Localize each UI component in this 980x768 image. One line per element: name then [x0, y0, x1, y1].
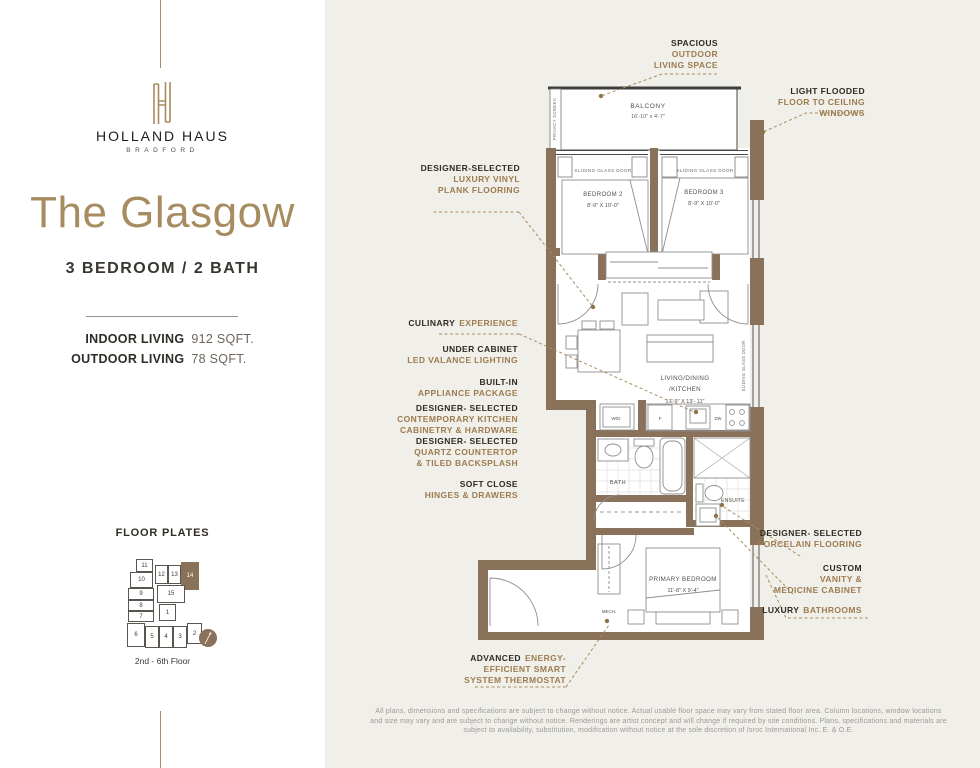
sliding-glass-door-label-vertical: SLIDING GLASS DOOR	[741, 340, 746, 391]
bedroom3-label: BEDROOM 3	[684, 190, 724, 196]
floor-plate-unit: 13	[168, 565, 181, 584]
floor-plate-unit: 12	[155, 565, 168, 584]
brand-location: BRADFORD	[0, 147, 325, 154]
outdoor-living-value: 78 SQFT.	[191, 352, 253, 366]
callout-line: QUARTZ COUNTERTOP	[414, 447, 518, 457]
callout-under-cabinet: UNDER CABINET LED VALANCE LIGHTING	[407, 344, 518, 366]
callout-line: WINDOWS	[819, 108, 865, 118]
callout-line: EFFICIENT SMART	[484, 664, 567, 674]
balcony-label: BALCONY	[630, 103, 665, 110]
callout-line: SPACIOUS	[671, 38, 718, 48]
callout-line: DESIGNER- SELECTED	[760, 528, 862, 538]
bedroom2-dims: 8'-9" X 10'-0"	[587, 203, 619, 209]
callout-line: HINGES & DRAWERS	[425, 490, 518, 500]
callout-light-flooded: LIGHT FLOODED FLOOR TO CEILING WINDOWS	[778, 86, 865, 119]
callout-line: SYSTEM THERMOSTAT	[464, 675, 566, 685]
callout-line: BUILT-IN	[480, 377, 518, 387]
floor-plate-unit: 8	[128, 600, 154, 611]
callout-line: DESIGNER- SELECTED	[416, 436, 518, 446]
page-title: The Glasgow	[0, 188, 325, 238]
balcony: PRIVACY SCREEN BALCONY 16'-10" x 4'-7"	[548, 88, 741, 150]
callout-line: APPLIANCE PACKAGE	[418, 388, 518, 398]
callout-spacious-outdoor: SPACIOUS OUTDOOR LIVING SPACE	[654, 38, 718, 71]
callout-line: SOFT CLOSE	[460, 479, 518, 489]
living-label-2: /KITCHEN	[669, 386, 701, 393]
callout-line: PLANK FLOORING	[438, 185, 520, 195]
living-label-1: LIVING/DINING	[661, 375, 710, 382]
callout-line: VANITY &	[820, 574, 862, 584]
callout-vinyl-flooring: DESIGNER-SELECTED LUXURY VINYL PLANK FLO…	[421, 163, 520, 196]
callout-line: EXPERIENCE	[459, 318, 518, 328]
decor-line-bottom	[160, 711, 161, 768]
callout-line: LIGHT FLOODED	[790, 86, 865, 96]
plan-panel: PRIVACY SCREEN BALCONY 16'-10" x 4'-7"	[325, 0, 980, 768]
callout-line: LED VALANCE LIGHTING	[407, 355, 518, 365]
callout-line: OUTDOOR	[672, 49, 718, 59]
decor-line-top	[160, 0, 161, 68]
bedroom3-dims: 8'-9" X 10'-0"	[688, 201, 720, 207]
callout-soft-close: SOFT CLOSE HINGES & DRAWERS	[425, 479, 518, 501]
callout-line: BATHROOMS	[803, 605, 862, 615]
callout-culinary: CULINARYEXPERIENCE	[408, 318, 518, 329]
sliding-glass-door-label: SLIDING GLASS DOOR	[574, 168, 632, 173]
floor-plate-unit: 7	[128, 611, 154, 622]
indoor-living-value: 912 SQFT.	[191, 332, 253, 346]
disclaimer: All plans, dimensions and specifications…	[355, 707, 962, 736]
callout-line: DESIGNER-SELECTED	[421, 163, 520, 173]
dw-label: DW	[715, 416, 722, 421]
callout-line: CULINARY	[408, 318, 455, 328]
disclaimer-line: and size may vary and are subject to cha…	[355, 717, 962, 727]
unit-type: 3 BEDROOM / 2 BATH	[0, 260, 325, 278]
callout-thermostat: ADVANCEDENERGY- EFFICIENT SMART SYSTEM T…	[464, 653, 566, 686]
callout-line: ENERGY-	[525, 653, 566, 663]
floor-plate-unit: 15	[157, 585, 185, 603]
floor-plate-unit: 1	[159, 604, 176, 621]
page: { "colors": { "accent_gold": "#a78c60", …	[0, 0, 980, 768]
callout-line: LUXURY	[762, 605, 799, 615]
outdoor-living-label: OUTDOOR LIVING	[71, 352, 184, 366]
disclaimer-line: subject to availability, substitution, m…	[355, 726, 962, 736]
primary-label: PRIMARY BEDROOM	[649, 576, 717, 583]
callout-line: UNDER CABINET	[442, 344, 518, 354]
callout-line: LUXURY VINYL	[453, 174, 520, 184]
callout-line: LIVING SPACE	[654, 60, 718, 70]
north-arrow-icon	[198, 628, 218, 648]
callout-line: CUSTOM	[823, 563, 862, 573]
brand-name: HOLLAND HAUS	[0, 128, 325, 144]
callout-line: ADVANCED	[470, 653, 521, 663]
ensuite-label: ENSUITE	[721, 498, 745, 504]
floor-plate-unit: 5	[145, 626, 159, 648]
floor-plates-caption: 2nd - 6th Floor	[0, 656, 325, 666]
callout-line: CABINETRY & HARDWARE	[400, 425, 518, 435]
callout-line: CONTEMPORARY KITCHEN	[397, 414, 518, 424]
floor-plate-unit: 10	[130, 572, 153, 588]
floor-plate-unit: 6	[127, 623, 145, 647]
holland-haus-monogram-icon	[142, 80, 182, 126]
callout-custom-vanity: CUSTOM VANITY & MEDICINE CABINET	[774, 563, 862, 596]
privacy-screen-label: PRIVACY SCREEN	[552, 98, 557, 140]
primary-dims: 11'-8" X 9'-4"	[667, 588, 698, 594]
callout-line: DESIGNER- SELECTED	[416, 403, 518, 413]
floor-plate-unit: 11	[136, 559, 153, 572]
divider	[86, 316, 238, 317]
callout-line: FLOOR TO CEILING	[778, 97, 865, 107]
callout-line: MEDICINE CABINET	[774, 585, 862, 595]
area-stats: INDOOR LIVING 912 SQFT. OUTDOOR LIVING 7…	[0, 332, 325, 366]
floor-plate-unit: 9	[128, 588, 154, 600]
callout-line: & TILED BACKSPLASH	[416, 458, 518, 468]
floor-plates-title: FLOOR PLATES	[0, 527, 325, 539]
callout-luxury-bathrooms: LUXURYBATHROOMS	[762, 605, 862, 616]
floor-plate-unit: 3	[173, 626, 187, 648]
callout-line: PORCELAIN FLOORING	[758, 539, 862, 549]
indoor-living-label: INDOOR LIVING	[71, 332, 184, 346]
floor-plate-keymap: 11 12 13 14 10 9 15 8 7 1 6 5 4 3 2	[127, 557, 205, 649]
callout-porcelain: DESIGNER- SELECTED PORCELAIN FLOORING	[758, 528, 862, 550]
mech-label: MECH.	[602, 609, 617, 614]
callout-quartz: DESIGNER- SELECTED QUARTZ COUNTERTOP & T…	[414, 436, 518, 469]
disclaimer-line: All plans, dimensions and specifications…	[355, 707, 962, 717]
sliding-glass-door-label: SLIDING GLASS DOOR	[676, 168, 734, 173]
floor-plate-unit: 4	[159, 626, 173, 648]
bath-label: BATH	[610, 480, 626, 486]
balcony-dims: 16'-10" x 4'-7"	[631, 114, 665, 120]
callout-cabinetry: DESIGNER- SELECTED CONTEMPORARY KITCHEN …	[397, 403, 518, 436]
bedroom2-label: BEDROOM 2	[583, 192, 623, 198]
callout-built-in: BUILT-IN APPLIANCE PACKAGE	[418, 377, 518, 399]
fridge-label: F	[659, 416, 662, 421]
wd-label: W/D	[612, 416, 622, 421]
sidebar: HOLLAND HAUS BRADFORD The Glasgow 3 BEDR…	[0, 0, 325, 768]
